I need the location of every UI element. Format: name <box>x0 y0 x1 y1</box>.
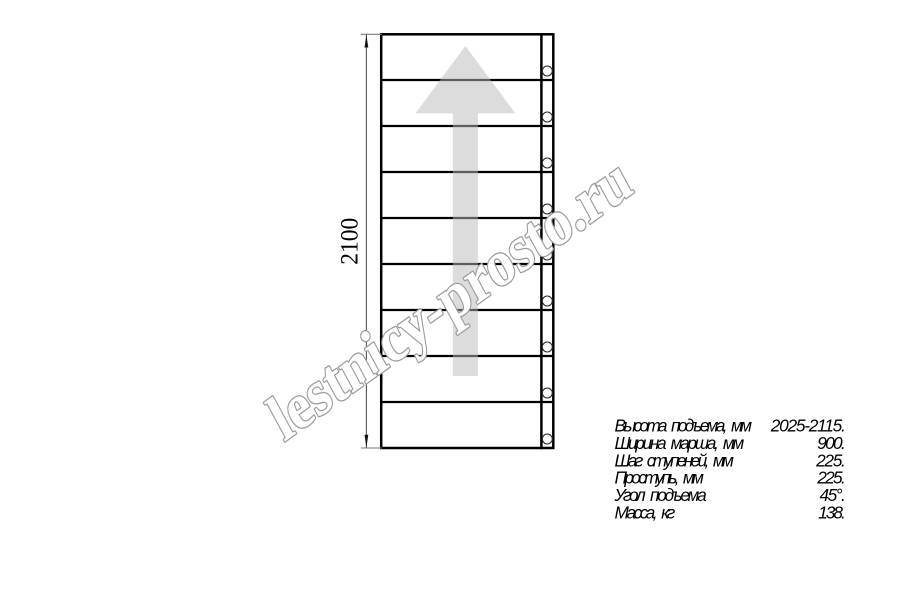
svg-text:2100: 2100 <box>337 218 364 265</box>
svg-text:Масса, кг: Масса, кг <box>615 502 676 522</box>
svg-text:138.: 138. <box>818 502 846 522</box>
